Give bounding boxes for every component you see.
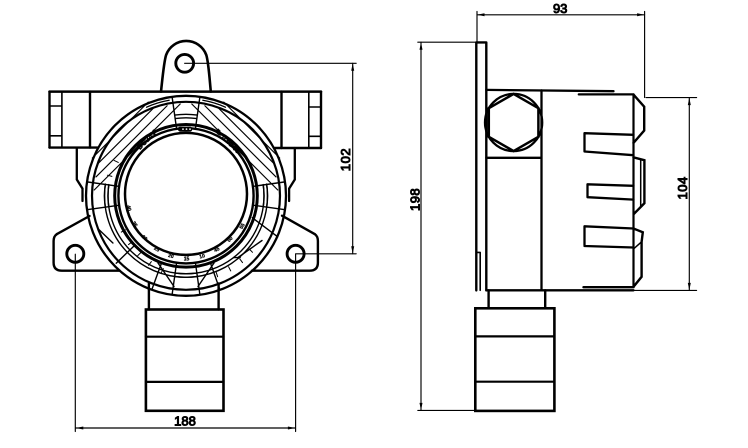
svg-text:104: 104 <box>675 177 690 200</box>
svg-text:40: 40 <box>125 205 132 212</box>
svg-text:102: 102 <box>338 148 353 172</box>
svg-text:25: 25 <box>153 246 161 254</box>
svg-text:198: 198 <box>408 188 423 211</box>
svg-text:188: 188 <box>174 413 196 428</box>
svg-text:20: 20 <box>167 253 174 260</box>
svg-text:45: 45 <box>213 246 221 254</box>
svg-text:10: 10 <box>199 253 206 260</box>
svg-text:93: 93 <box>553 1 567 16</box>
svg-text:15: 15 <box>184 256 190 262</box>
